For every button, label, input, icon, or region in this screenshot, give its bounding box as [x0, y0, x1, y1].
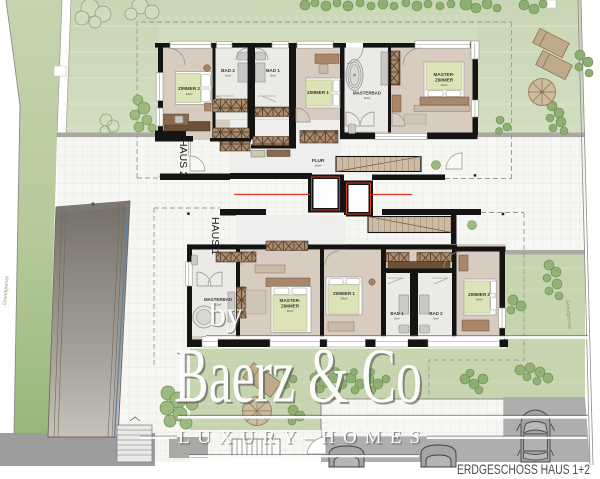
svg-text:6m²: 6m² [225, 74, 230, 78]
svg-text:14m²: 14m² [341, 297, 348, 301]
svg-text:ZIMMER 1: ZIMMER 1 [307, 90, 329, 95]
svg-text:6m²: 6m² [394, 317, 399, 321]
svg-text:Baerz & Co: Baerz & Co [174, 332, 422, 419]
svg-text:BAD 1: BAD 1 [266, 68, 280, 73]
svg-text:L U X U R Y – H O M E S: L U X U R Y – H O M E S [178, 427, 420, 448]
svg-text:16m²: 16m² [287, 309, 294, 313]
svg-text:HAUS 2: HAUS 2 [177, 139, 189, 177]
svg-text:BAD 2: BAD 2 [221, 68, 235, 73]
svg-text:MASTERBAD: MASTERBAD [353, 91, 381, 96]
svg-text:ERDGESCHOSS HAUS 1+2: ERDGESCHOSS HAUS 1+2 [457, 461, 590, 477]
svg-text:6m²: 6m² [270, 74, 275, 78]
svg-text:MASTER-: MASTER- [280, 298, 301, 303]
svg-text:ZIMMER 2: ZIMMER 2 [178, 86, 200, 91]
svg-text:14m²: 14m² [186, 92, 193, 96]
svg-text:16m²: 16m² [441, 83, 448, 87]
svg-text:HAUS 1: HAUS 1 [209, 217, 221, 255]
svg-text:ZIMMER: ZIMMER [281, 304, 300, 309]
svg-text:6m²: 6m² [433, 317, 438, 321]
svg-text:14m²: 14m² [476, 298, 483, 302]
svg-text:11m²: 11m² [364, 96, 371, 100]
svg-text:by: by [209, 297, 243, 334]
svg-text:ZIMMER 2: ZIMMER 2 [468, 292, 490, 297]
svg-text:BAD 1: BAD 1 [390, 311, 404, 316]
svg-text:ZIMMER 1: ZIMMER 1 [333, 291, 355, 296]
svg-text:10m²: 10m² [315, 164, 322, 168]
svg-text:ZIMMER: ZIMMER [435, 78, 454, 83]
svg-text:BAD 2: BAD 2 [429, 311, 443, 316]
svg-text:MASTER-: MASTER- [434, 72, 455, 77]
